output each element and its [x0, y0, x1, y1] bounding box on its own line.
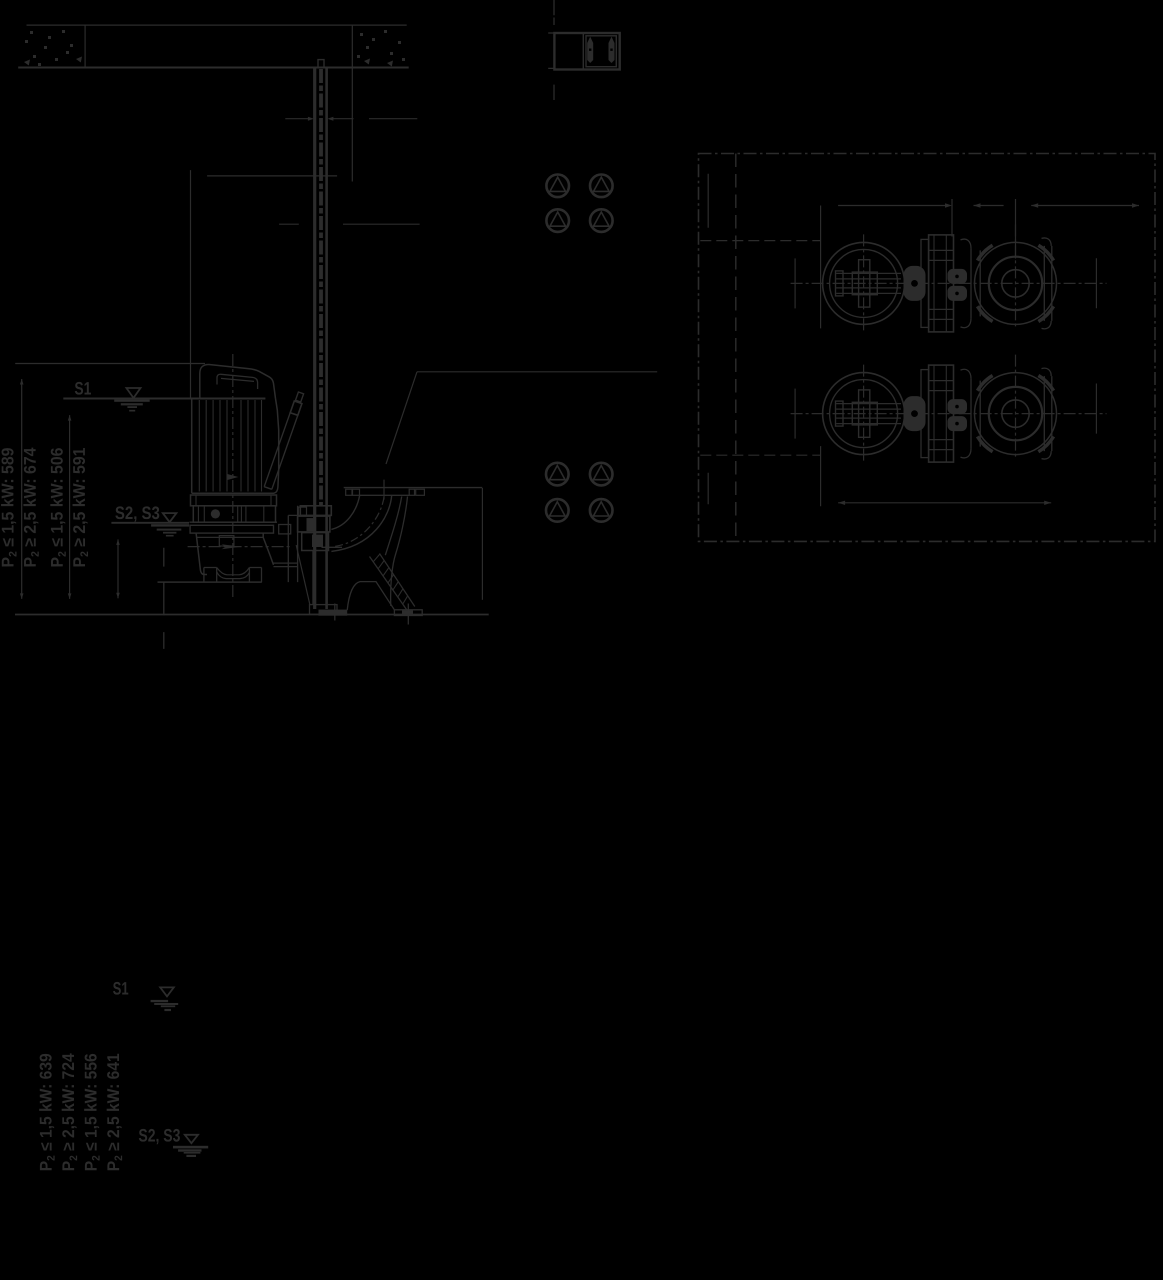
svg-text:P2 ≥ 2,5 kW: 591: P2 ≥ 2,5 kW: 591	[70, 447, 91, 567]
svg-text:P2 ≥ 2,5 kW: 674: P2 ≥ 2,5 kW: 674	[21, 447, 42, 568]
svg-text:P2 ≤ 1,5 kW: 589: P2 ≤ 1,5 kW: 589	[0, 447, 19, 567]
svg-text:P2 ≤ 1,5 kW: 506: P2 ≤ 1,5 kW: 506	[48, 447, 69, 567]
svg-text:S2, S3: S2, S3	[115, 503, 160, 523]
svg-text:P2 ≤ 1,5 kW: 556: P2 ≤ 1,5 kW: 556	[81, 1053, 102, 1171]
svg-text:P2 ≥ 2,5 kW: 724: P2 ≥ 2,5 kW: 724	[59, 1053, 80, 1172]
svg-text:S1: S1	[113, 979, 129, 999]
svg-text:S2, S3: S2, S3	[138, 1126, 180, 1146]
svg-text:P2 ≤ 1,5 kW: 639: P2 ≤ 1,5 kW: 639	[36, 1053, 57, 1171]
svg-text:S1: S1	[74, 379, 91, 399]
svg-text:P2 ≥ 2,5 kW: 641: P2 ≥ 2,5 kW: 641	[104, 1053, 125, 1171]
